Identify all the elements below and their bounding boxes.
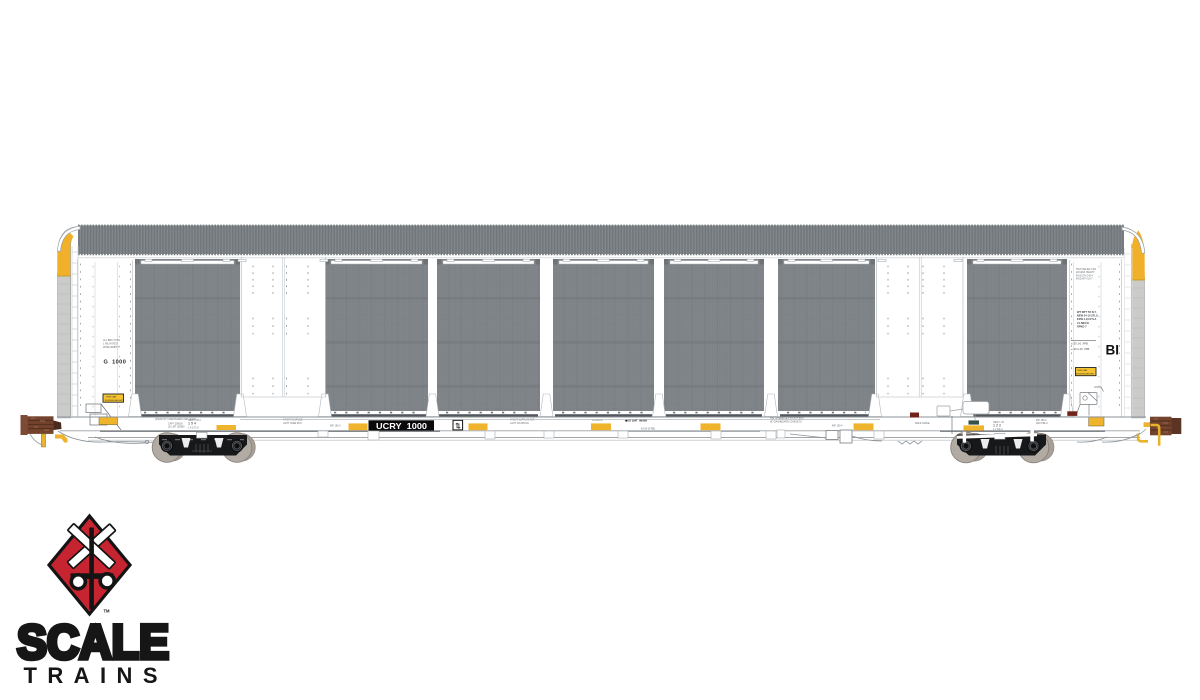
svg-text:JRN 9 BL K: JRN 9 BL K: [1036, 423, 1048, 425]
svg-text:WT RPT TO N.Y.: WT RPT TO N.Y.: [1077, 310, 1097, 314]
svg-text:RPKD 7: RPKD 7: [1077, 324, 1087, 328]
svg-text:LD LMT 158500: LD LMT 158500: [168, 427, 185, 429]
svg-text:INSD WTH 10-7: INSD WTH 10-7: [1076, 279, 1093, 281]
svg-text:◂ 30 2-10 XPB: ◂ 30 2-10 XPB: [1071, 347, 1089, 351]
svg-text:TM: TM: [104, 609, 111, 614]
svg-text:SMLR CABLE: SMLR CABLE: [915, 422, 930, 425]
svg-text:NO DASHBOARD CONSULTS: NO DASHBOARD CONSULTS: [770, 421, 802, 424]
svg-text:◂ 30 1-0 XPB: ◂ 30 1-0 XPB: [1071, 342, 1088, 346]
svg-text:UCRY 1000: UCRY 1000: [376, 421, 427, 431]
svg-text:CL MECH: CL MECH: [1077, 321, 1089, 325]
svg-text:B 100-20 RBL: B 100-20 RBL: [641, 428, 656, 430]
svg-text:THIS CAR: THIS CAR: [1077, 369, 1088, 372]
svg-text:1 2 40LU: 1 2 40LU: [993, 428, 1003, 431]
svg-text:CAPY 200000: CAPY 200000: [168, 422, 183, 425]
svg-text:INSD LTH 145-4: INSD LTH 145-4: [1076, 275, 1094, 277]
svg-text:G 1000: G 1000: [104, 360, 127, 366]
svg-text:LGTH COUPLING: LGTH COUPLING: [510, 423, 529, 425]
svg-text:⇅: ⇅: [455, 422, 461, 430]
svg-text:WHEN EMPTY: WHEN EMPTY: [103, 346, 120, 349]
svg-text:HIGH RELIEF CAR: HIGH RELIEF CAR: [1076, 268, 1096, 271]
svg-text:◆US LMT 90008: ◆US LMT 90008: [624, 418, 647, 422]
svg-text:EXCESS HEIGHT: EXCESS HEIGHT: [1076, 373, 1094, 375]
svg-text:45F 150.4: 45F 150.4: [1036, 420, 1047, 422]
svg-text:EXW 4-10 ETLA: EXW 4-10 ETLA: [1077, 317, 1096, 321]
svg-text:EXCESS HEIGHT: EXCESS HEIGHT: [1076, 272, 1095, 274]
svg-text:45F 150.4: 45F 150.4: [330, 426, 341, 428]
svg-text:1 8 5 TLN: 1 8 5 TLN: [188, 426, 199, 429]
svg-text:BI: BI: [1106, 343, 1120, 358]
svg-text:EXCESS HEIGHT: EXCESS HEIGHT: [105, 400, 123, 402]
svg-text:45F 150.4: 45F 150.4: [832, 426, 843, 428]
svg-text:LGTH OVER 95-8: LGTH OVER 95-8: [283, 423, 302, 425]
svg-text:1 5 4: 1 5 4: [188, 422, 196, 426]
svg-text:THIS CAR: THIS CAR: [106, 396, 117, 399]
svg-text:SCALE: SCALE: [17, 617, 169, 670]
svg-text:NEW 04-10 STLS: NEW 04-10 STLS: [1077, 314, 1098, 318]
svg-text:CUSHION: CUSHION: [592, 420, 603, 422]
svg-text:1 2 2: 1 2 2: [993, 424, 1001, 428]
